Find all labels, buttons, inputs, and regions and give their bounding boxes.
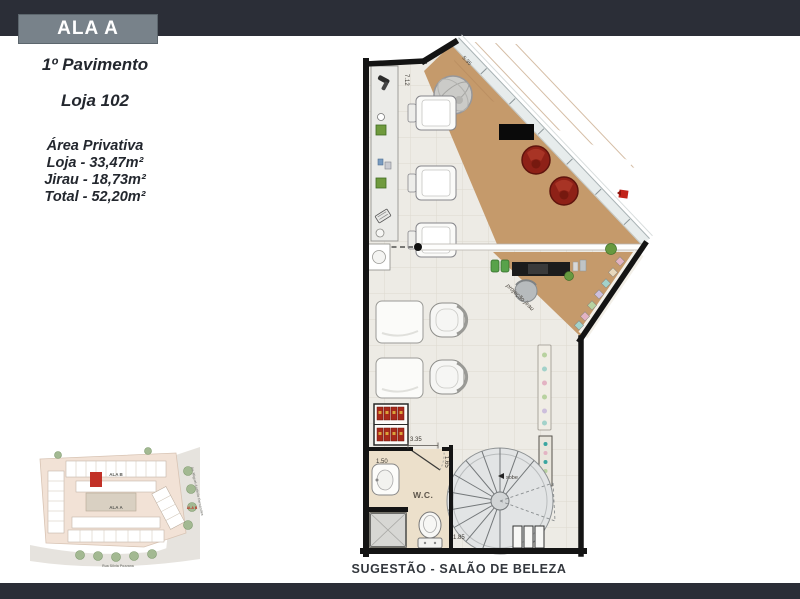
- dim-stair: 1.85: [453, 535, 465, 541]
- site-block: [40, 453, 186, 547]
- dim-left-wall: 7.12: [403, 74, 409, 86]
- unit-label: Loja 102: [6, 90, 184, 112]
- siteplan-wing-b-label: ALA B: [109, 472, 123, 477]
- highlighted-unit: [90, 472, 102, 487]
- hydrant-icon: [617, 189, 629, 198]
- plant-icon: [565, 272, 574, 281]
- retail-shelf-red: [374, 404, 408, 445]
- plant-icon: [376, 125, 386, 135]
- bottom-navy-band: [0, 583, 800, 599]
- siteplan-street-bottom-label: Rua Silvia Pozzana: [102, 564, 134, 568]
- plant-icon: [376, 178, 386, 188]
- siteplan-wing-right-label: ALA B: [187, 506, 198, 510]
- client-chair: [430, 360, 467, 394]
- entry-steps: [513, 526, 544, 548]
- area-line-total: Total - 52,20m²: [6, 189, 184, 206]
- plant-icon: [606, 244, 617, 255]
- wc-label: W.C.: [413, 490, 433, 500]
- styling-counter: [371, 66, 398, 259]
- unit-info-block: 1º Pavimento Loja 102 Área Privativa Loj…: [6, 54, 184, 206]
- dim-wc-door: 1.65: [443, 456, 449, 468]
- styling-chairs: [408, 96, 456, 257]
- area-line-loja: Loja - 33,47m²: [6, 155, 184, 172]
- lounge-chair-red-2: [550, 177, 578, 205]
- ala-a-label: ALA A: [57, 18, 119, 40]
- toilet: [418, 512, 442, 548]
- plan-caption: SUGESTÃO - SALÃO DE BELEZA: [339, 562, 579, 576]
- logo-sign: [499, 124, 534, 140]
- display-gondola: [538, 345, 551, 430]
- plant-icon: [501, 260, 509, 272]
- siteplan-wing-a-label: ALA A: [109, 505, 123, 510]
- dim-wc-width: 1.50: [376, 459, 388, 465]
- clock-icon: [378, 114, 385, 121]
- floor-label: 1º Pavimento: [6, 54, 184, 76]
- register-icon: [580, 260, 586, 271]
- dim-shelf: 3.35: [410, 437, 422, 443]
- site-key-plan: ALA B ALA A ALA B Rua Silvia Pozzana Av.…: [28, 441, 204, 577]
- area-title: Área Privativa: [6, 138, 184, 155]
- column-dot: [414, 243, 422, 251]
- floor-plan: projeção jirau: [358, 33, 668, 563]
- sink: [372, 464, 399, 495]
- site-plan-svg: ALA B ALA A ALA B Rua Silvia Pozzana Av.…: [28, 441, 204, 577]
- bottle-icon: [378, 159, 383, 165]
- duct-shaft: [368, 507, 408, 547]
- sobe-label: sobe: [506, 475, 518, 481]
- bowl-icon: [376, 229, 384, 237]
- accessory-icon: [385, 162, 391, 169]
- register-icon: [573, 262, 578, 271]
- area-line-jirau: Jirau - 18,73m²: [6, 172, 184, 189]
- plant-icon: [491, 260, 499, 272]
- wall-table: [368, 244, 390, 270]
- floor-plan-svg: projeção jirau: [358, 33, 668, 563]
- lounge-chair-red-1: [522, 146, 550, 174]
- client-chair: [430, 303, 467, 337]
- ala-a-header-box: ALA A: [18, 14, 158, 44]
